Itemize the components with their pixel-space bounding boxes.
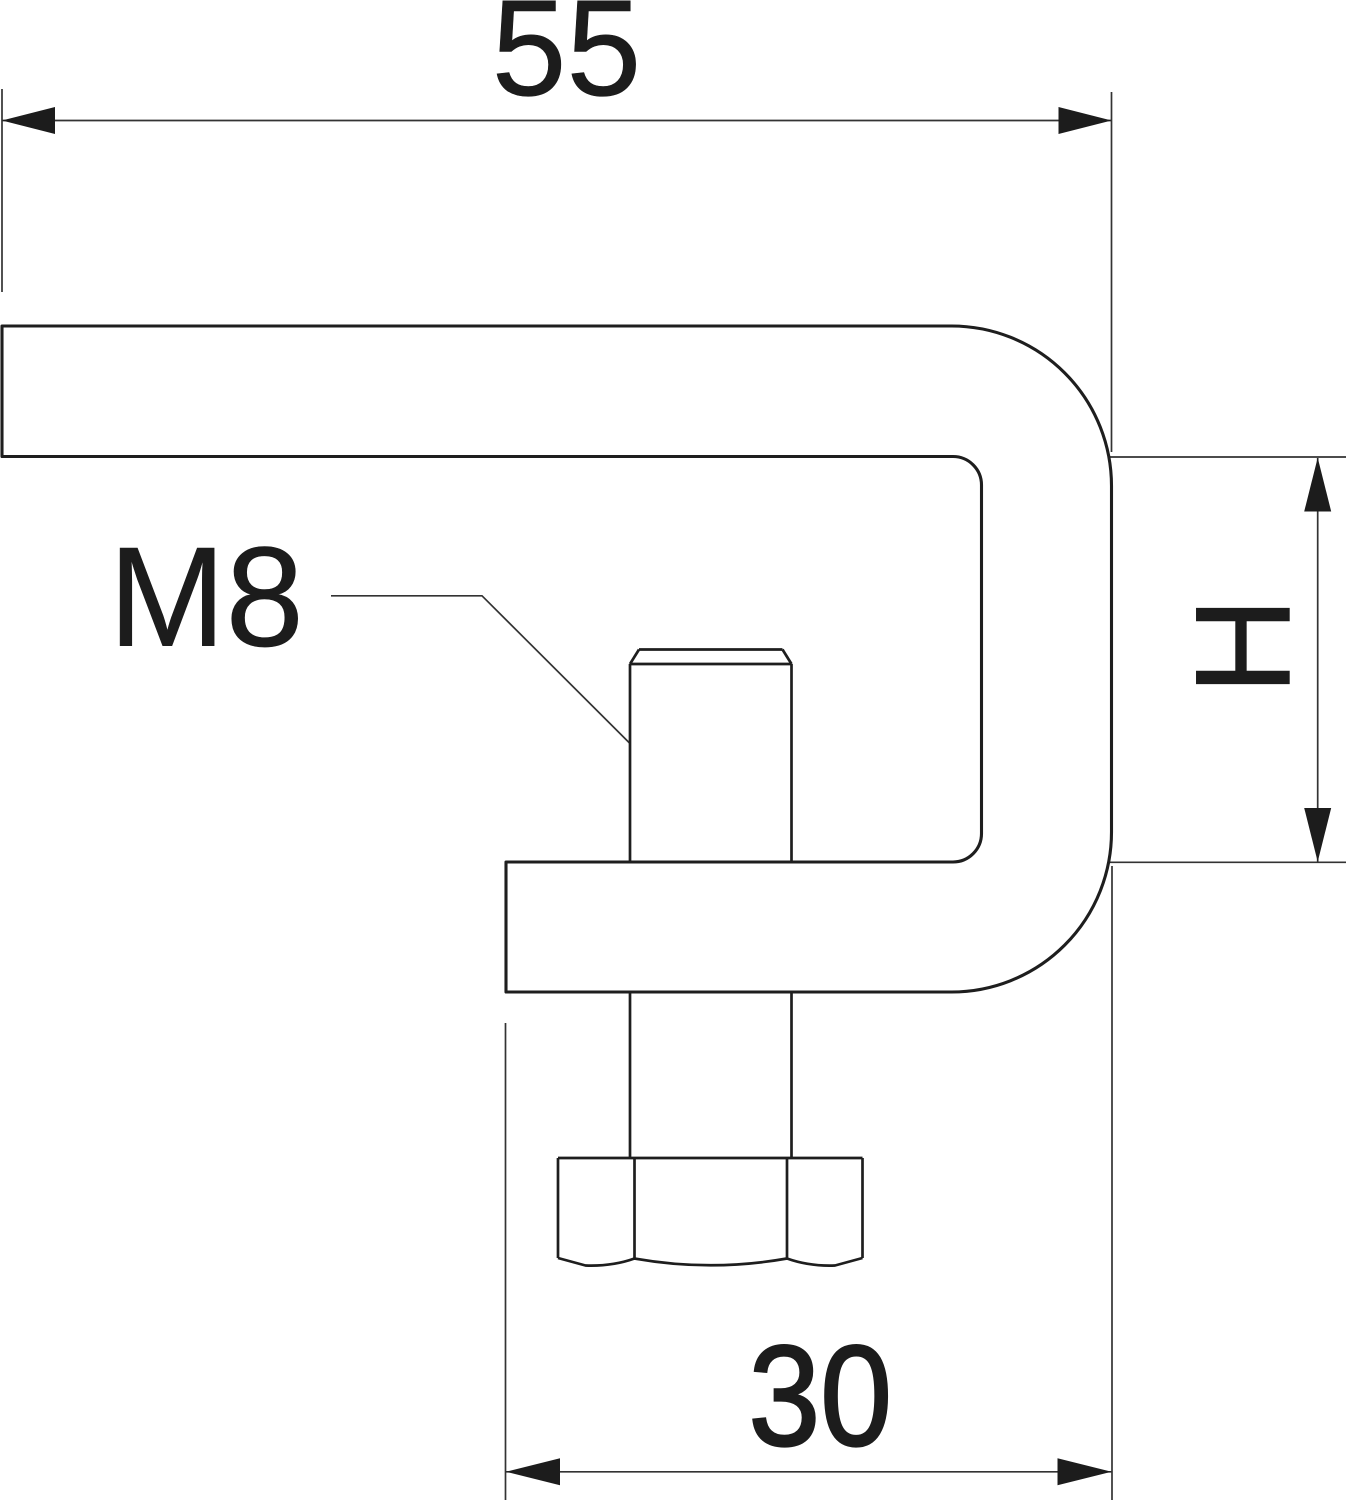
svg-text:M8: M8 (109, 518, 304, 677)
svg-text:55: 55 (492, 0, 642, 125)
svg-text:H: H (1167, 597, 1318, 695)
svg-text:30: 30 (749, 1317, 893, 1476)
